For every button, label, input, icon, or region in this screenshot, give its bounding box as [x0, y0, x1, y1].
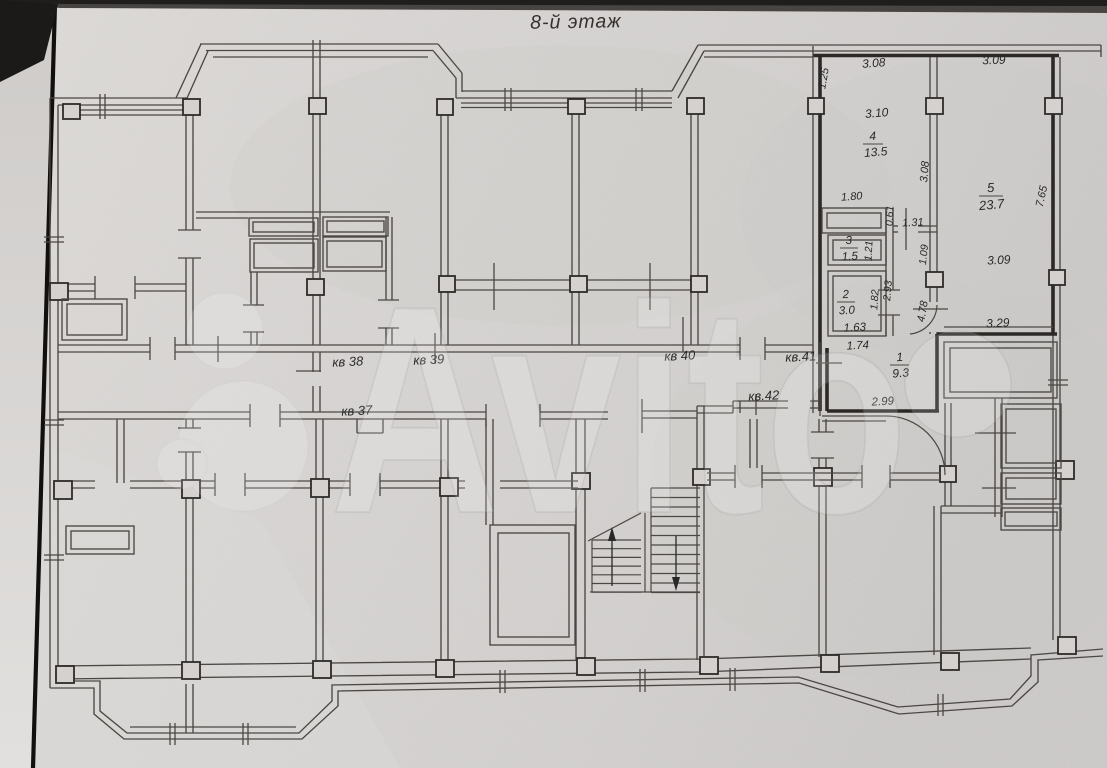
svg-text:3.09: 3.09 [982, 53, 1006, 68]
svg-text:3.08: 3.08 [918, 160, 932, 183]
svg-text:3.29: 3.29 [986, 315, 1010, 330]
svg-text:13.5: 13.5 [863, 144, 888, 160]
svg-text:1.31: 1.31 [902, 216, 924, 229]
svg-text:8-й этаж: 8-й этаж [530, 10, 622, 34]
svg-text:3.10: 3.10 [864, 105, 889, 121]
svg-text:3.08: 3.08 [862, 55, 887, 71]
svg-text:0.61: 0.61 [883, 205, 896, 226]
svg-text:23.7: 23.7 [977, 196, 1005, 213]
svg-text:1.80: 1.80 [841, 190, 864, 204]
svg-text:3.09: 3.09 [987, 252, 1011, 267]
svg-text:Avito: Avito [330, 244, 908, 575]
svg-text:4: 4 [869, 129, 877, 143]
svg-text:1.09: 1.09 [917, 244, 931, 266]
